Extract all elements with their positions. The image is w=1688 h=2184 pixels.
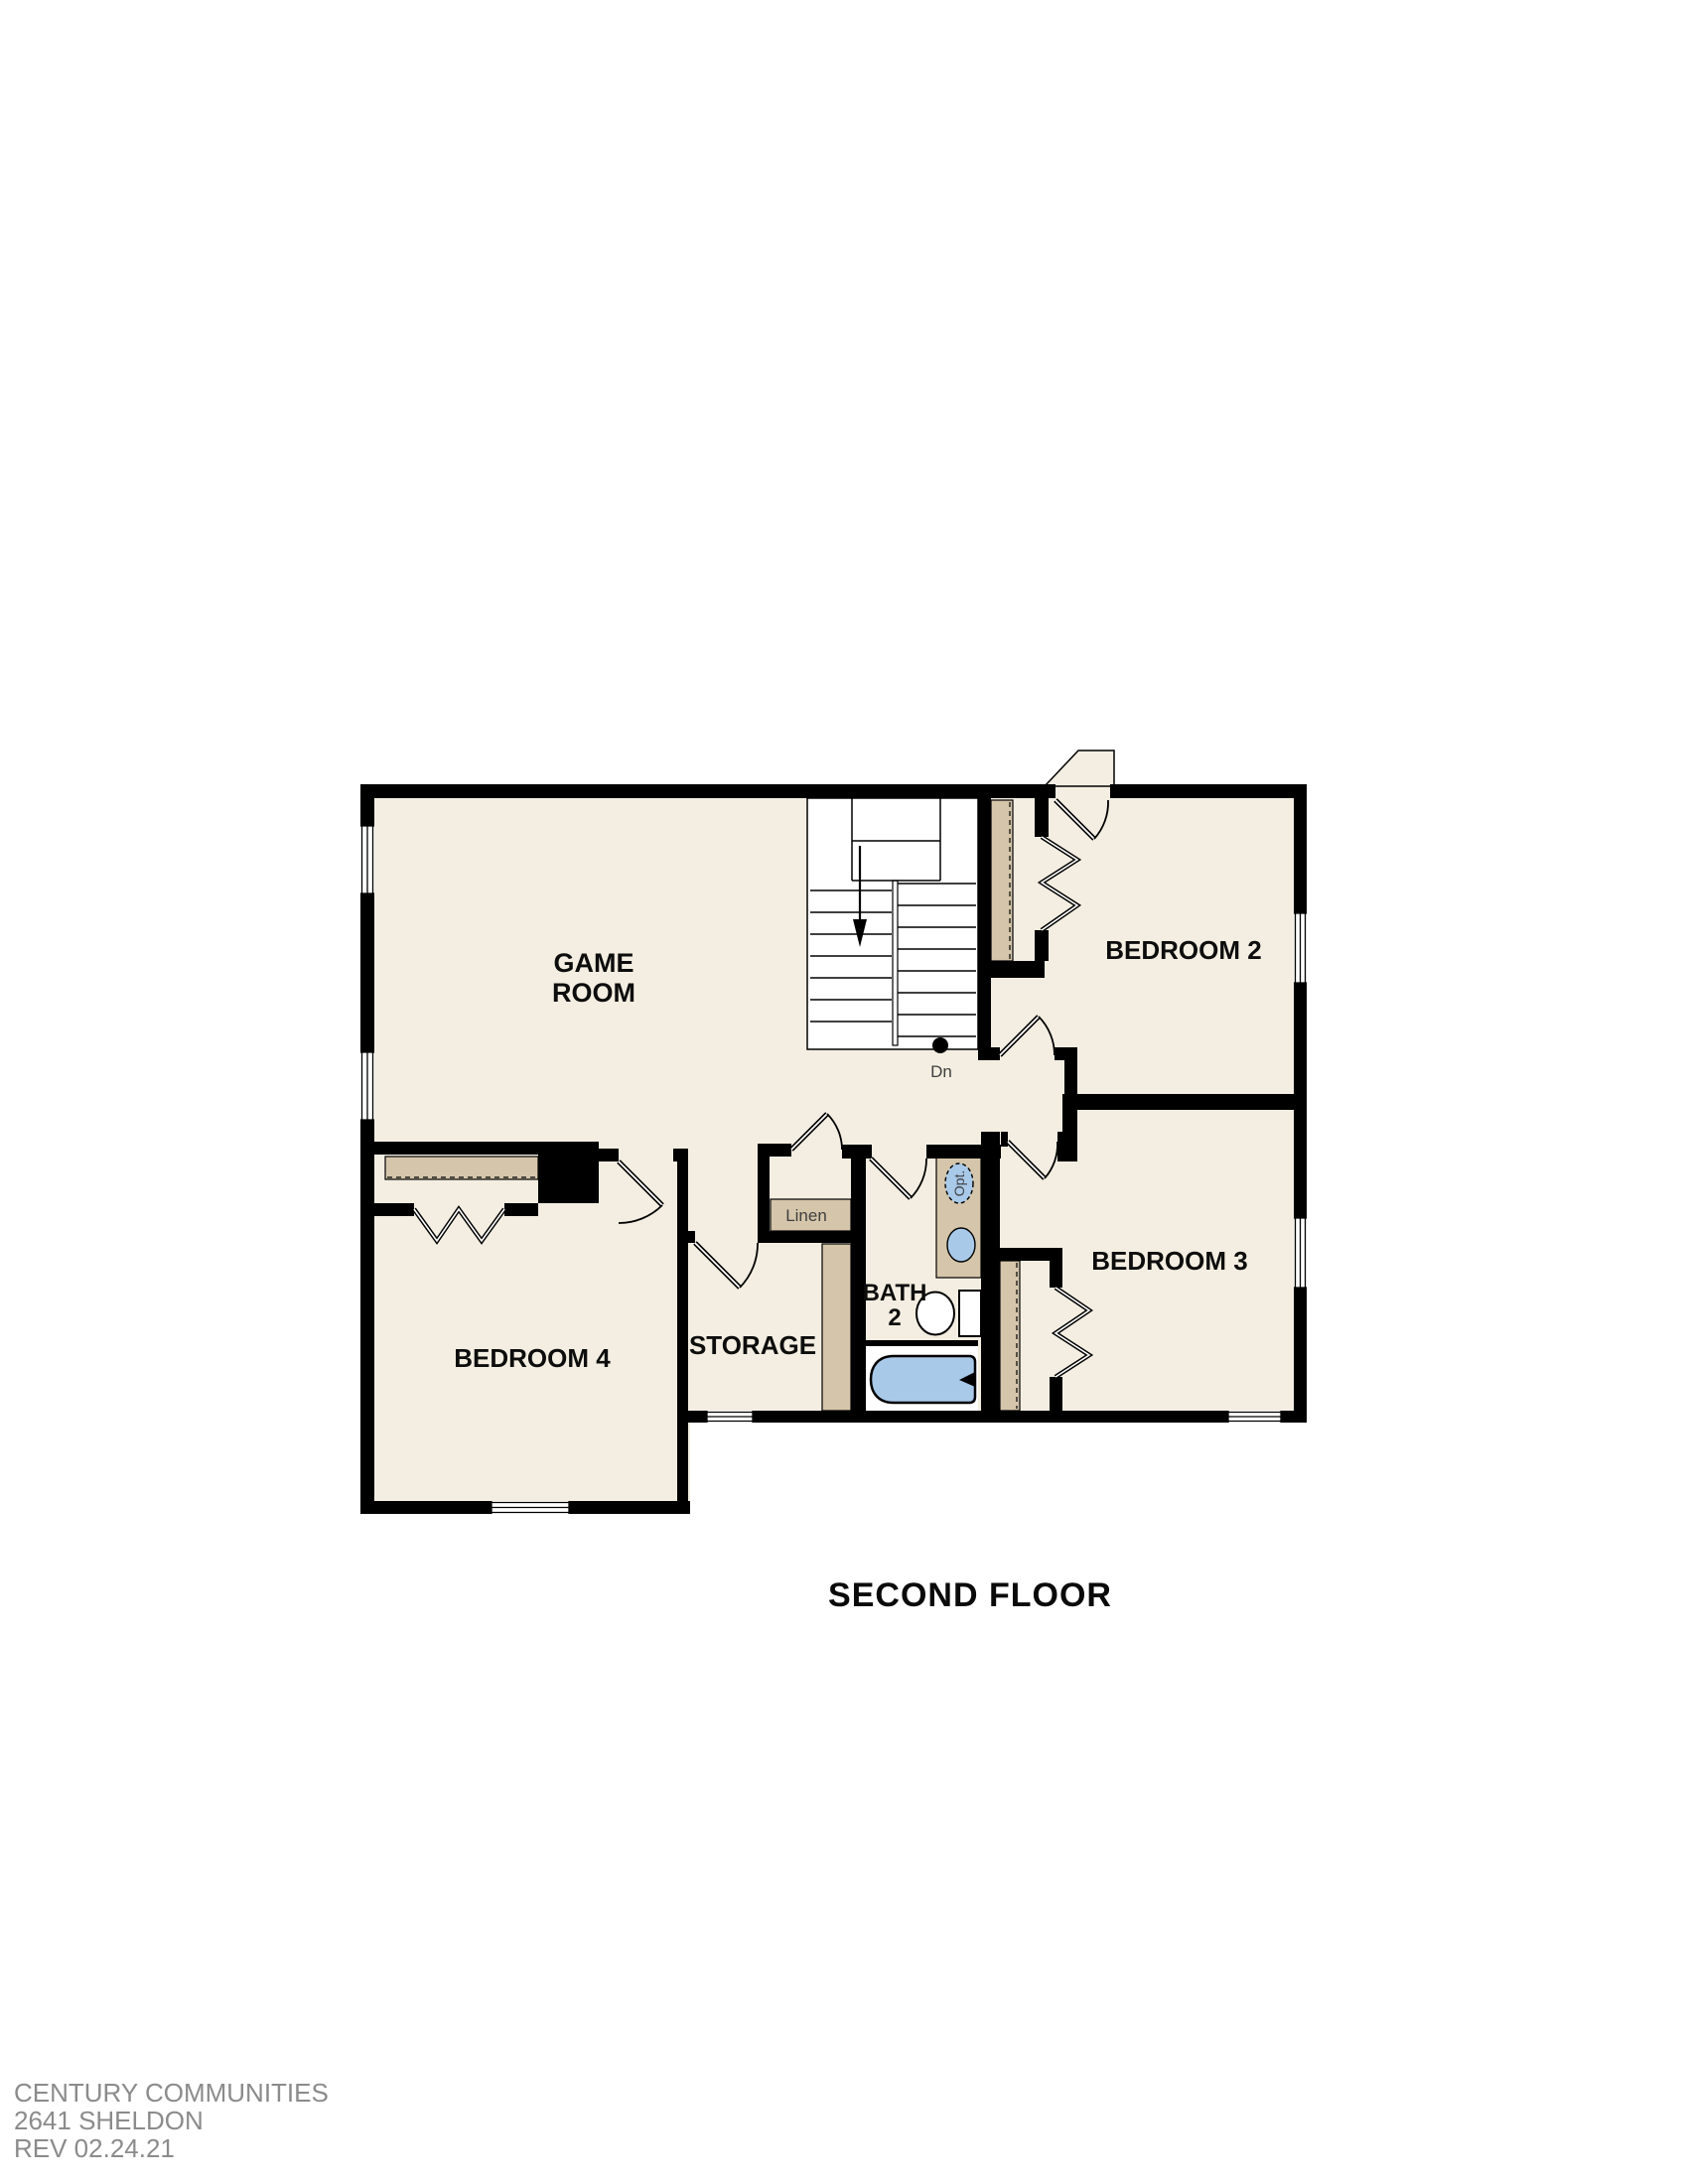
window-bedroom4 bbox=[492, 1501, 569, 1514]
room-label-storage: STORAGE bbox=[689, 1330, 816, 1360]
tub-platform-edge bbox=[866, 1340, 978, 1346]
revision-date: REV 02.24.21 bbox=[14, 2134, 329, 2162]
stair-rail-post bbox=[932, 1037, 948, 1053]
label-opt-sink: Opt. bbox=[951, 1170, 967, 1196]
title-block: CENTURY COMMUNITIES 2641 SHELDON REV 02.… bbox=[14, 2079, 329, 2162]
window-bedroom3-side bbox=[1294, 1218, 1307, 1288]
room-label-bedroom4: BEDROOM 4 bbox=[454, 1343, 611, 1373]
room-label-bedroom3: BEDROOM 3 bbox=[1091, 1246, 1247, 1276]
room-label-bath-2: 2 bbox=[888, 1304, 901, 1331]
floor-title: SECOND FLOOR bbox=[692, 1576, 1248, 1615]
room-label-game-room-1: GAME bbox=[554, 948, 634, 978]
window-storage bbox=[707, 1411, 753, 1423]
room-label-game-room-2: ROOM bbox=[552, 978, 635, 1008]
window-bedroom3-bottom bbox=[1228, 1411, 1281, 1423]
wall-block bbox=[538, 1142, 599, 1203]
wall-bumpout bbox=[1045, 751, 1114, 786]
builder-name: CENTURY COMMUNITIES bbox=[14, 2079, 329, 2107]
room-label-bedroom2: BEDROOM 2 bbox=[1105, 935, 1261, 965]
room-label-bath-1: BATH bbox=[863, 1280, 927, 1306]
plan-number: 2641 SHELDON bbox=[14, 2107, 329, 2134]
floor-plan: GAME ROOM BEDROOM 2 BEDROOM 3 BEDROOM 4 … bbox=[0, 0, 1688, 2184]
bathtub bbox=[871, 1356, 975, 1403]
window-bedroom2 bbox=[1294, 913, 1307, 983]
closet-shelf-bedroom4 bbox=[385, 1157, 538, 1179]
storage-shelf bbox=[822, 1244, 851, 1411]
label-linen: Linen bbox=[785, 1206, 827, 1225]
label-stairs-dn: Dn bbox=[930, 1062, 952, 1081]
window-gameroom-2 bbox=[360, 1052, 374, 1120]
window-gameroom-1 bbox=[360, 826, 374, 893]
sink bbox=[947, 1228, 975, 1262]
